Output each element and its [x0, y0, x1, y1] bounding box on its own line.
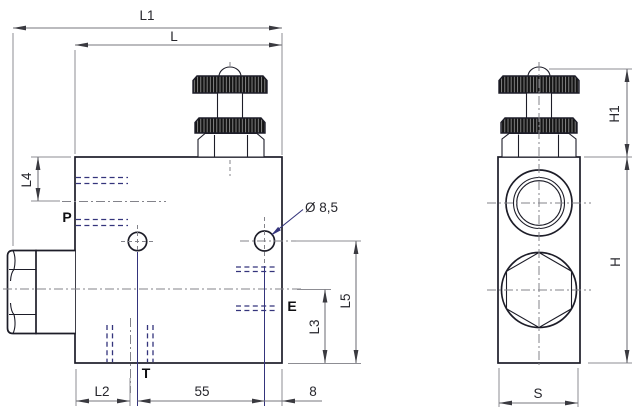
knob-upper-knurled-disk: [193, 76, 267, 93]
dim-label-h1: H1: [607, 105, 622, 122]
valve-technical-drawing: L1 L L4 P Ø 8,5 E L3 L5 L2 T 55 8: [0, 0, 640, 417]
side-view: H1 H S: [487, 62, 632, 407]
dim-label-l5: L5: [338, 293, 353, 308]
dim-label-l: L: [170, 29, 178, 44]
hex-fitting-outline: [8, 251, 76, 334]
hex-fitting-front: [8, 251, 76, 334]
knob-lower-knurled-disk: [195, 118, 265, 133]
knob-stem: [218, 93, 243, 119]
valve-body-front: [75, 157, 282, 363]
drawing-canvas: L1 L L4 P Ø 8,5 E L3 L5 L2 T 55 8: [0, 0, 640, 417]
dim-label-8: 8: [309, 384, 317, 399]
knob-cap-dome: [219, 67, 241, 77]
front-view: L1 L L4 P Ø 8,5 E L3 L5 L2 T 55 8: [3, 8, 361, 406]
knob-lock-nut: [198, 134, 264, 158]
dimension-l4: [31, 157, 71, 201]
port-label-e: E: [287, 298, 296, 314]
dim-label-l3: L3: [307, 319, 322, 334]
dim-label-55: 55: [194, 384, 209, 399]
hole-diameter-label: Ø 8,5: [305, 200, 338, 215]
dim-label-l1: L1: [139, 8, 154, 23]
port-label-p: P: [62, 209, 71, 225]
dim-label-s: S: [533, 386, 542, 401]
dim-label-l2: L2: [94, 384, 109, 399]
dim-label-l4: L4: [19, 172, 34, 188]
dim-label-h: H: [608, 257, 623, 267]
port-label-t: T: [142, 365, 151, 381]
